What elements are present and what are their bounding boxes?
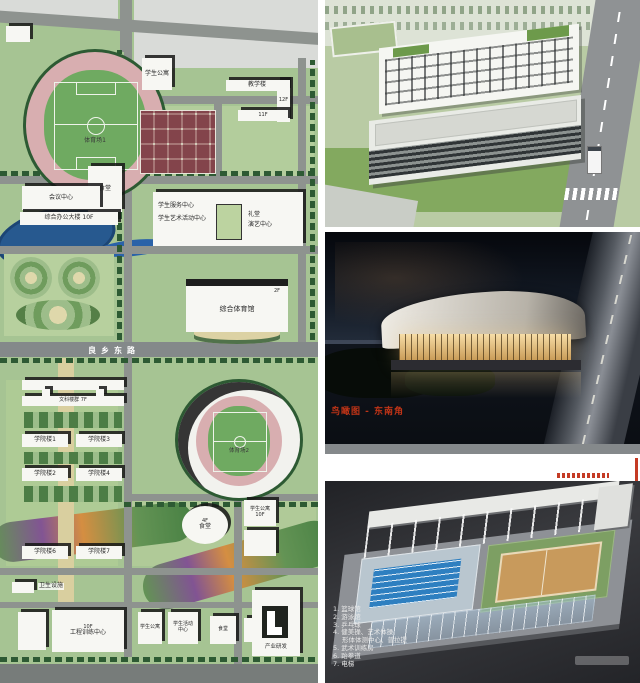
sanitation-label: 卫生设施	[38, 583, 64, 590]
red-dotted-note	[557, 473, 609, 478]
teaching-wing: 11F	[238, 110, 288, 121]
night-caption: 鸟瞰图 - 东南角	[331, 404, 404, 417]
gym-plaza	[194, 332, 280, 344]
dorm-east: 学生公寓 10F	[244, 500, 276, 526]
legend-item: 7. 电梯	[333, 661, 407, 669]
aerial-rendering-day	[325, 0, 640, 227]
road	[0, 568, 318, 575]
college4-label: 学院楼4	[88, 471, 110, 478]
road	[124, 357, 132, 657]
road-label: 良乡东路	[88, 345, 140, 356]
office-label: 综合办公大楼 10F	[45, 215, 94, 222]
college-building: 学院楼4	[76, 468, 122, 481]
garden-parterre	[16, 300, 100, 330]
pitch-circle	[234, 436, 246, 448]
service-label: 学生服务中心	[158, 203, 194, 210]
college-building: 学院楼2	[22, 468, 68, 481]
teaching-floor1: 12F	[279, 98, 288, 104]
road-liangxiang	[0, 342, 318, 357]
college-building: 学院楼1	[22, 434, 68, 447]
conference-center: 会议中心	[22, 186, 100, 210]
service-tower	[594, 483, 633, 530]
college1-label: 学院楼1	[34, 437, 56, 444]
sanitation-building	[12, 582, 34, 593]
canteen-south-label: 食堂	[218, 627, 228, 633]
court-lines	[541, 550, 548, 595]
college7-label: 学院楼7	[88, 549, 110, 556]
liberal-arts-label: 文科楼群 7F	[59, 398, 87, 404]
stadium1-label: 体育场1	[70, 138, 120, 145]
red-edge-line	[635, 458, 638, 481]
engineering-annex	[18, 612, 46, 650]
engineering-label: 工程训练中心	[70, 630, 106, 637]
tree-row	[310, 60, 315, 340]
auditorium-label-1: 礼堂	[248, 212, 260, 219]
building	[6, 26, 30, 42]
hedge	[24, 486, 122, 502]
gym-label: 综合体育馆	[220, 305, 255, 313]
glowing-facade	[399, 334, 571, 361]
gym-base	[391, 360, 581, 370]
teaching-label: 教学楼	[248, 82, 266, 89]
reflection	[391, 372, 581, 398]
liberal-arts-bar: 文科楼群 7F	[22, 396, 124, 406]
dorm-south-label: 学生公寓	[140, 625, 160, 631]
canteen-south: 食堂	[210, 616, 236, 644]
college-building: 学院楼3	[76, 434, 122, 447]
activity-south-label: 学生活动中心	[171, 622, 195, 634]
college-building: 学院楼6	[22, 546, 68, 559]
dorm-east	[244, 530, 276, 556]
aerial-rendering-night: 鸟瞰图 - 东南角	[325, 232, 640, 454]
road-south	[0, 664, 318, 683]
dorm-east-label: 学生公寓 10F	[246, 507, 274, 519]
mullions	[399, 334, 571, 361]
road	[0, 246, 318, 254]
road	[120, 0, 132, 52]
hedge	[24, 452, 122, 464]
liberal-arts-bar	[22, 380, 124, 390]
bus	[587, 146, 602, 174]
facility-legend: 1. 篮球馆 2. 游泳馆 3. 乒乓球 4. 健美操、艺术体操 形体体测中心、…	[333, 606, 407, 668]
hedge	[24, 412, 122, 428]
gymnasium: 综合体育馆	[186, 286, 288, 332]
tree-row	[124, 502, 318, 507]
lane-dashes	[577, 232, 634, 454]
dorm-top: 学生公寓	[142, 58, 172, 90]
presentation-collage: 良乡东路 体育场1 食堂 学生公寓 教学楼	[0, 0, 640, 683]
activity-south: 学生活动中心	[168, 612, 198, 644]
link-block	[42, 389, 50, 397]
teaching-floor2: 11F	[258, 113, 267, 119]
canteen2-label: 食堂	[199, 524, 211, 531]
industry-label: 产业研发	[254, 644, 298, 650]
office-tower: 综合办公大楼 10F	[20, 212, 118, 225]
link-block	[96, 389, 104, 397]
tree-row	[0, 657, 318, 662]
stadium2-label: 体育场2	[206, 448, 272, 454]
bottom-road-strip	[325, 444, 640, 454]
goal-box	[76, 82, 116, 95]
conference-label: 会议中心	[49, 195, 73, 202]
auditorium-label-2: 演艺中心	[248, 222, 272, 229]
pitch-circle	[87, 117, 105, 135]
watermark	[575, 656, 629, 665]
crosswalk	[564, 188, 620, 200]
tree-row	[0, 358, 318, 363]
art-activity-label: 学生艺术活动中心	[158, 216, 210, 223]
college6-label: 学院楼6	[34, 549, 56, 556]
college-building: 学院楼7	[76, 546, 122, 559]
canteen-oval: 4F 食堂	[182, 506, 228, 544]
gym-floor: 2F	[274, 289, 280, 295]
engineering-center: 10F 工程训练中心	[52, 610, 124, 652]
garden-parterre	[10, 257, 52, 299]
college3-label: 学院楼3	[88, 437, 110, 444]
canteen-top-label: 食堂	[99, 186, 111, 193]
tennis-courts	[140, 110, 216, 174]
dorm-top-label: 学生公寓	[145, 71, 169, 78]
dorm-south: 学生公寓	[138, 612, 162, 644]
industry-core	[267, 627, 282, 635]
campus-master-plan: 良乡东路 体育场1 食堂 学生公寓 教学楼	[0, 0, 318, 683]
courtyard	[216, 204, 242, 240]
cutaway-rendering: 1. 篮球馆 2. 游泳馆 3. 乒乓球 4. 健美操、艺术体操 形体体测中心、…	[325, 458, 640, 683]
college2-label: 学院楼2	[34, 471, 56, 478]
garden-parterre	[58, 257, 100, 299]
